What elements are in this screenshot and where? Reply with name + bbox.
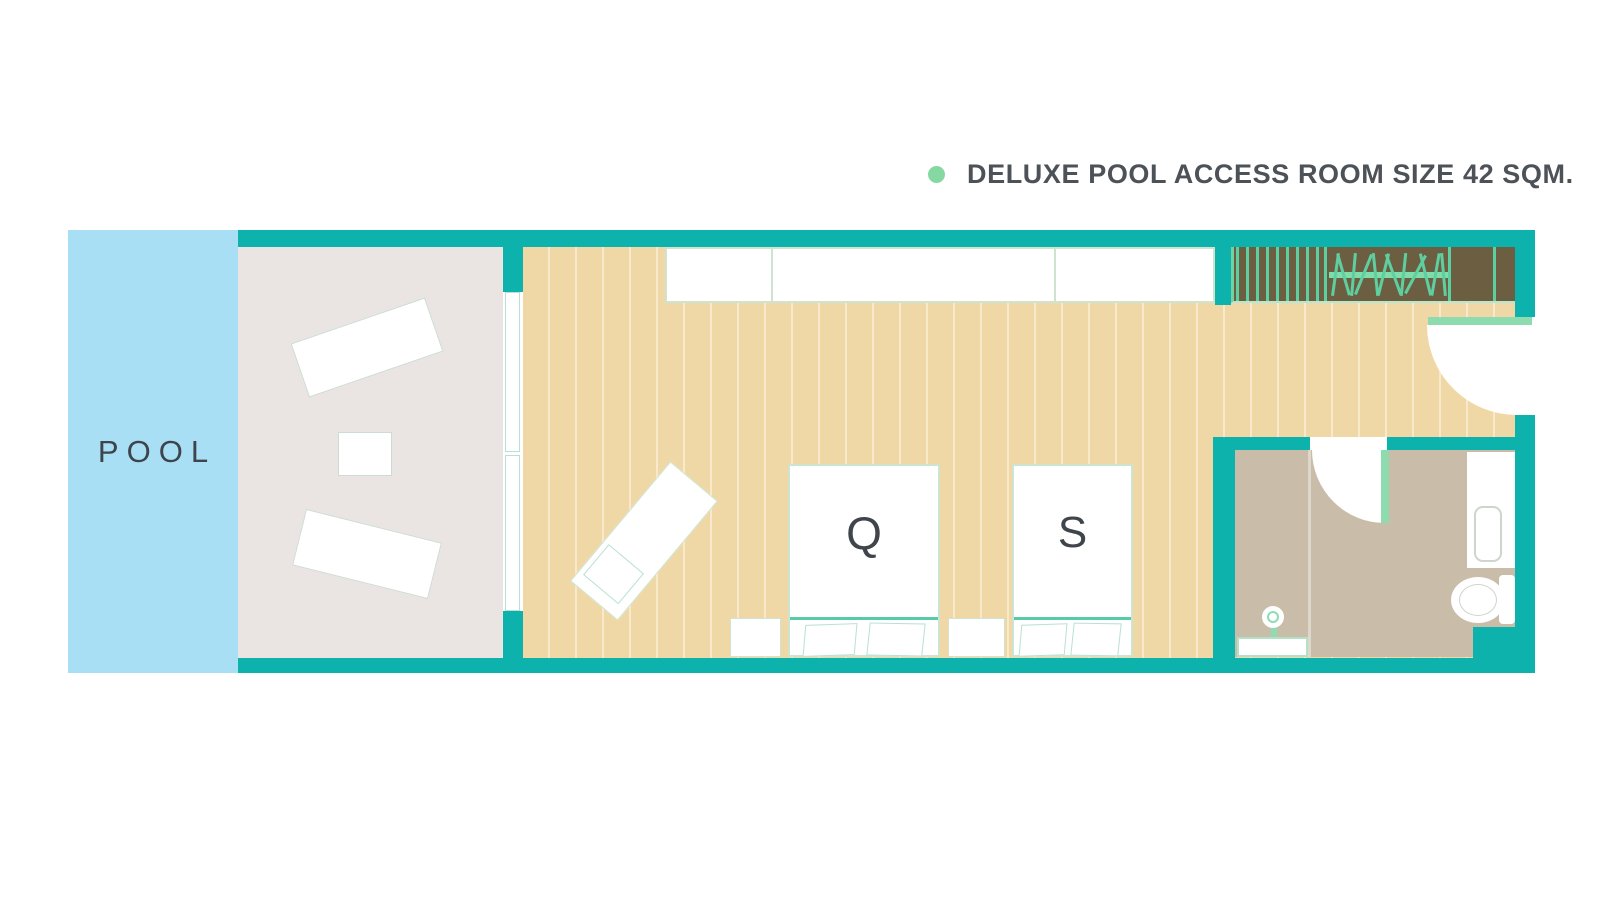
bathroom-corner-block	[1473, 627, 1535, 658]
closet-divider	[1448, 247, 1451, 301]
wall-right-top	[1515, 230, 1535, 317]
lounge-chair-cushion	[583, 544, 644, 604]
cabinet-divider	[771, 249, 773, 301]
sliding-door-glass-bottom	[505, 455, 520, 611]
pillow	[1019, 623, 1068, 657]
pool-area: POOL	[68, 230, 238, 673]
closet-shelf-slats	[1236, 247, 1324, 301]
pool-label: POOL	[90, 434, 216, 470]
single-headboard-line	[1014, 617, 1131, 620]
entry-door-leaf	[1428, 317, 1532, 325]
wall-bottom	[238, 658, 1535, 673]
cabinet-row	[665, 247, 1215, 303]
single-bed-label: S	[1014, 508, 1131, 558]
floor-plan: DELUXE POOL ACCESS ROOM SIZE 42 SQM. POO…	[0, 0, 1600, 900]
single-bed: S	[1012, 464, 1133, 657]
queen-headboard-line	[790, 617, 938, 620]
sliding-door-glass-top	[505, 292, 520, 452]
wardrobe-closet	[1231, 247, 1515, 303]
closet-divider	[1493, 247, 1496, 301]
wall-top	[238, 230, 1535, 247]
nightstand-middle	[948, 618, 1005, 657]
shower-bench	[1237, 637, 1308, 657]
sink	[1474, 506, 1502, 562]
legend-dot-icon	[928, 166, 945, 183]
cabinet-divider	[1054, 249, 1056, 301]
bathroom-door-leaf	[1381, 450, 1389, 523]
queen-bed: Q	[788, 464, 940, 657]
terrace-side-table	[338, 432, 392, 476]
pillow	[1070, 623, 1121, 657]
nightstand-left	[730, 618, 781, 657]
shower-drain-icon	[1262, 606, 1284, 628]
pillow	[866, 623, 925, 657]
bathroom-doorway-opening	[1310, 437, 1387, 450]
wall-stub-closet	[1215, 245, 1231, 305]
toilet-bowl	[1451, 577, 1505, 623]
bathroom-wall-top-left	[1213, 437, 1310, 450]
closet-divider	[1324, 247, 1327, 301]
queen-bed-label: Q	[790, 506, 938, 560]
sliding-door-wall-stub-bottom	[503, 611, 523, 658]
entry-doorway-opening	[1514, 325, 1535, 415]
shower-partition	[1308, 450, 1311, 657]
bathroom-wall-top-right	[1387, 437, 1515, 450]
bathroom-wall-left	[1213, 437, 1235, 658]
legend-label: DELUXE POOL ACCESS ROOM SIZE 42 SQM.	[967, 159, 1574, 190]
legend: DELUXE POOL ACCESS ROOM SIZE 42 SQM.	[928, 150, 1574, 198]
sliding-door-wall-stub-top	[503, 247, 523, 292]
pillow	[802, 623, 857, 657]
